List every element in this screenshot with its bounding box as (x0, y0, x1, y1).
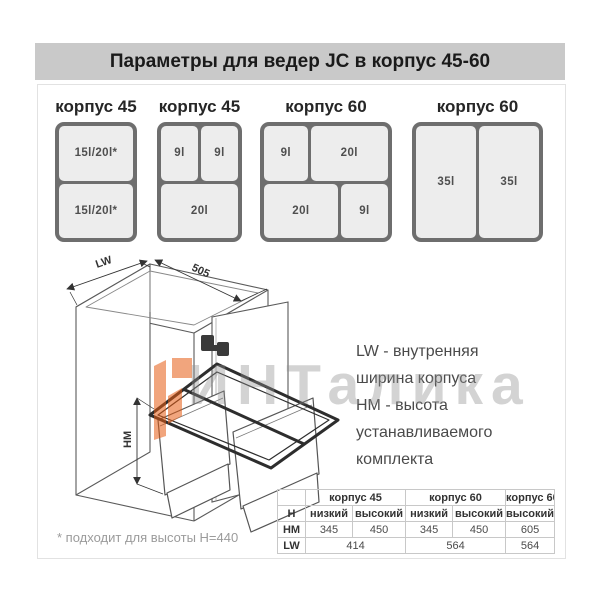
cabinet-diagram-60-a: корпус 60 9l 20l 20l 9l (260, 95, 392, 242)
diagram-box: 15l/20l* 15l/20l* (55, 122, 137, 242)
cabinet-diagram-45-b: корпус 45 9l 9l 20l (157, 95, 242, 242)
table-cell: 450 (353, 522, 406, 538)
group-header: корпус 60 (506, 490, 555, 506)
group-header: корпус 45 (306, 490, 406, 506)
diagram-box: 9l 9l 20l (157, 122, 242, 242)
cabinet-diagram-45-a: корпус 45 15l/20l* 15l/20l* (55, 95, 137, 242)
bucket-cell: 35l (479, 126, 539, 238)
watermark-text: ИНТалика (188, 352, 531, 418)
table-cell: 345 (406, 522, 453, 538)
table-cell: высокий 35l (506, 506, 555, 522)
diagram-title: корпус 45 (157, 95, 242, 119)
table-cell: низкий (406, 506, 453, 522)
table-row: H низкий высокий низкий высокий высокий … (278, 506, 555, 522)
diagram-box: 9l 20l 20l 9l (260, 122, 392, 242)
bucket-cell: 9l (264, 126, 308, 181)
diagram-box: 35l 35l (412, 122, 543, 242)
bucket-cell: 20l (264, 184, 338, 239)
bucket-cell: 15l/20l* (59, 126, 133, 181)
bucket-cell: 9l (201, 126, 238, 181)
legend-line: устанавливаемого (356, 419, 492, 446)
cabinet-diagram-60-b: корпус 60 35l 35l (412, 95, 543, 242)
bucket-cell: 9l (341, 184, 388, 239)
page: Параметры для ведер JC в корпус 45-60 ко… (0, 0, 600, 600)
bucket-cell: 9l (161, 126, 198, 181)
row-label: HM (278, 522, 306, 538)
table-cell: 345 (306, 522, 353, 538)
row-label: LW (278, 538, 306, 554)
table-cell: 605 (506, 522, 555, 538)
footnote: * подходит для высоты H=440 (57, 530, 238, 545)
group-header: корпус 60 (406, 490, 506, 506)
table-cell: 564 (506, 538, 555, 554)
diagram-title: корпус 60 (412, 95, 543, 119)
table-cell: высокий (453, 506, 506, 522)
table-cell: низкий (306, 506, 353, 522)
diagram-title: корпус 45 (55, 95, 137, 119)
table-cell: 450 (453, 522, 506, 538)
row-label: H (278, 506, 306, 522)
legend-line: комплекта (356, 446, 492, 473)
bucket-cell: 20l (161, 184, 238, 239)
table-row: корпус 45 корпус 60 корпус 60 (278, 490, 555, 506)
dim-label-lw: LW (94, 254, 114, 271)
table-cell: 414 (306, 538, 406, 554)
diagram-title: корпус 60 (260, 95, 392, 119)
bucket-cell: 20l (311, 126, 388, 181)
table-row: LW 414 564 564 (278, 538, 555, 554)
bucket-cell: 15l/20l* (59, 184, 133, 239)
table-row: HM 345 450 345 450 605 (278, 522, 555, 538)
spec-table: корпус 45 корпус 60 корпус 60 H низкий в… (277, 489, 555, 554)
table-corner-cell (278, 490, 306, 506)
table-cell: высокий (353, 506, 406, 522)
dim-label-hm: HM (122, 431, 134, 448)
page-title: Параметры для ведер JC в корпус 45-60 (35, 43, 565, 80)
bucket-cell: 35l (416, 126, 476, 238)
table-cell: 564 (406, 538, 506, 554)
